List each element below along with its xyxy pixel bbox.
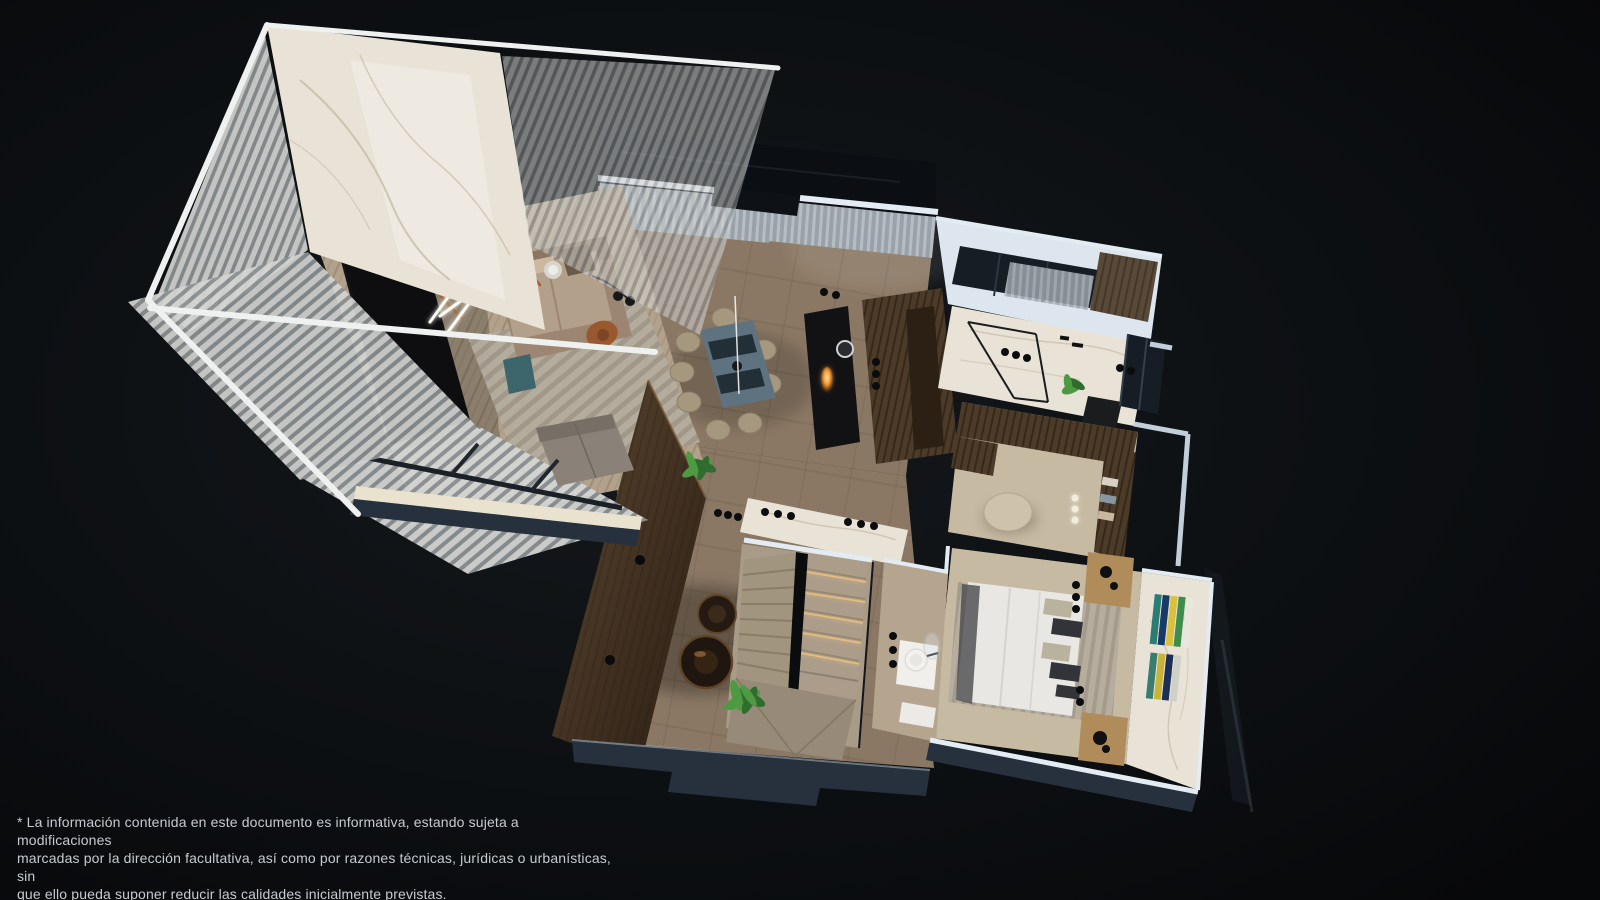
nightstand-decor	[1110, 582, 1118, 590]
nightstand-decor	[1102, 745, 1110, 753]
nightstand	[1084, 552, 1134, 608]
wall-art	[1150, 594, 1194, 648]
bed	[956, 582, 1084, 716]
island-flame	[821, 367, 833, 393]
disclaimer-line: marcadas por la dirección facultativa, a…	[17, 850, 611, 884]
accent-chair-seat	[597, 329, 609, 341]
side-table-top	[548, 265, 558, 275]
bathroom-wood-wall	[1090, 252, 1158, 322]
nightstand-decor	[1100, 566, 1112, 578]
cooktop-dial	[837, 341, 853, 357]
closet-downlights	[1072, 495, 1079, 524]
disclaimer-text: * La información contenida en este docum…	[17, 814, 617, 900]
nightstand-decor	[1093, 731, 1107, 745]
disclaimer-line: * La información contenida en este docum…	[17, 814, 519, 848]
ottoman	[503, 354, 536, 394]
floorplan-scene	[0, 0, 1600, 900]
staircase	[726, 540, 872, 760]
disclaimer-line: que ello pueda suponer reducir las calid…	[17, 886, 447, 900]
floorplan-render: * La información contenida en este docum…	[0, 0, 1600, 900]
pouf	[984, 493, 1032, 531]
